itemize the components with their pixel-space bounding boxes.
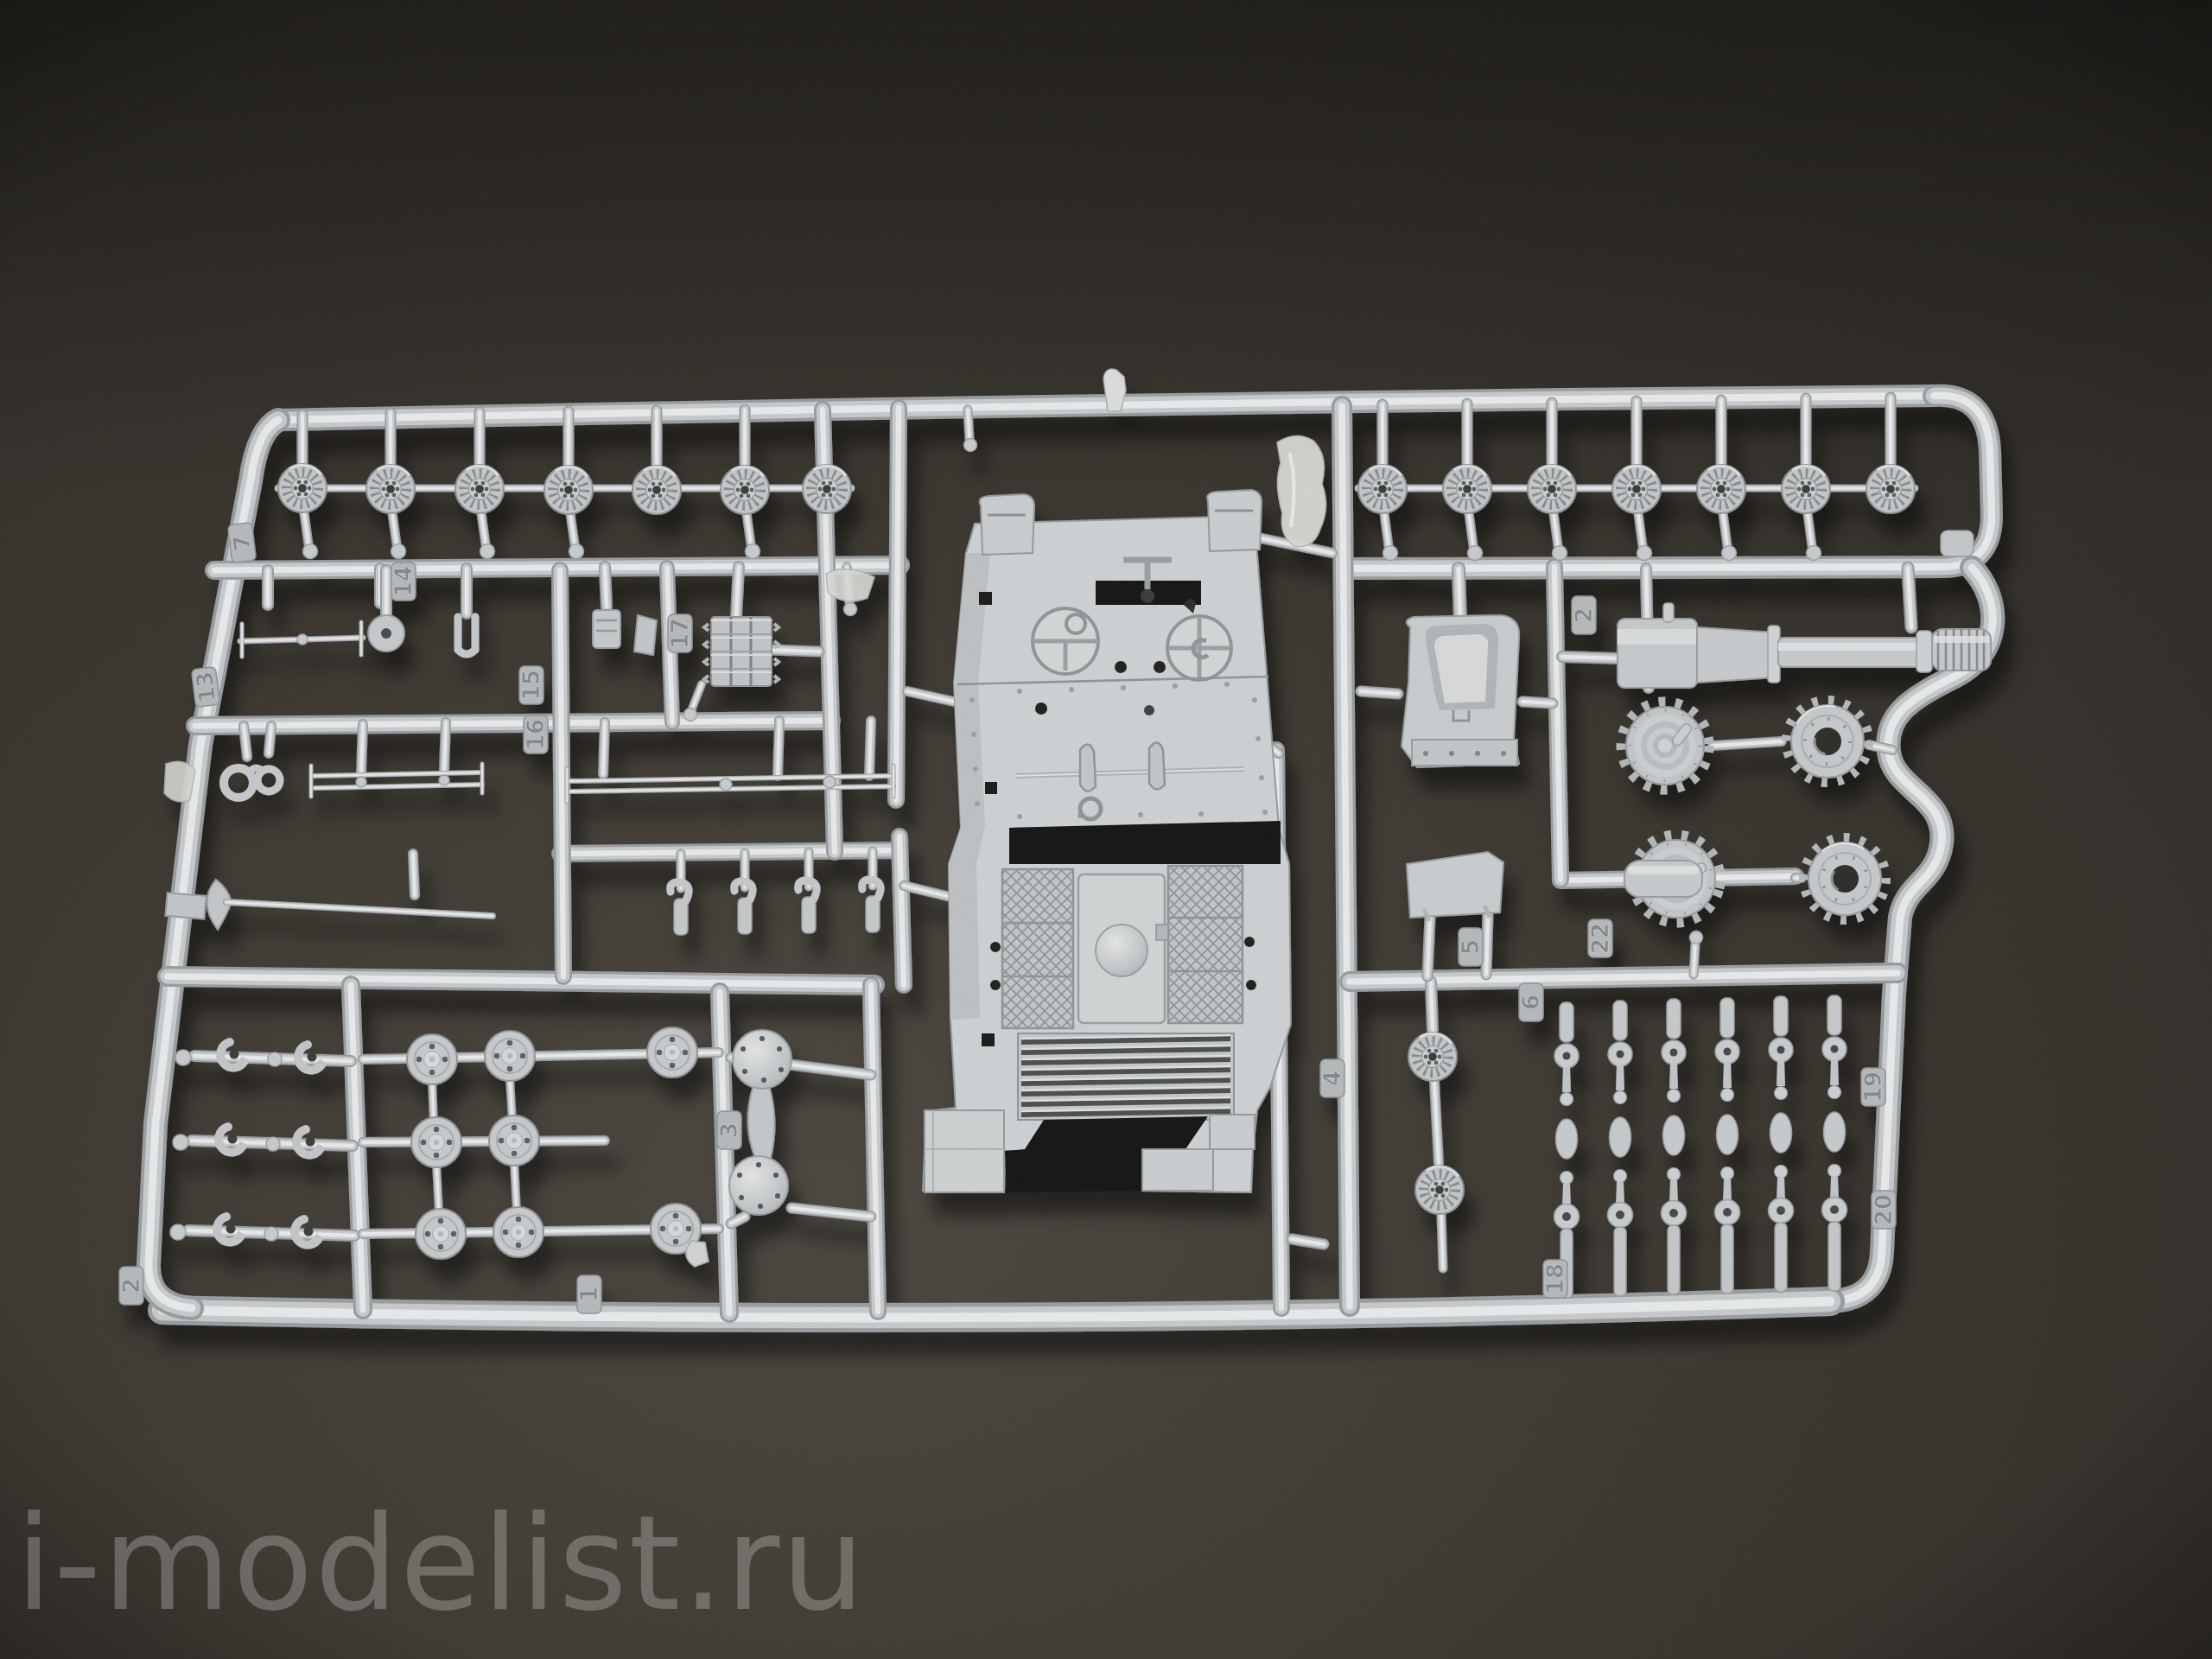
sprue-photo: 13 14 15 16 17 7 1 2 3 4 5 6 22 2 18 19 … [0,0,2212,1659]
vignette [0,0,2212,1659]
watermark-text: i-modelist.ru [16,1487,867,1640]
photo-canvas: 13 14 15 16 17 7 1 2 3 4 5 6 22 2 18 19 … [0,0,2212,1659]
